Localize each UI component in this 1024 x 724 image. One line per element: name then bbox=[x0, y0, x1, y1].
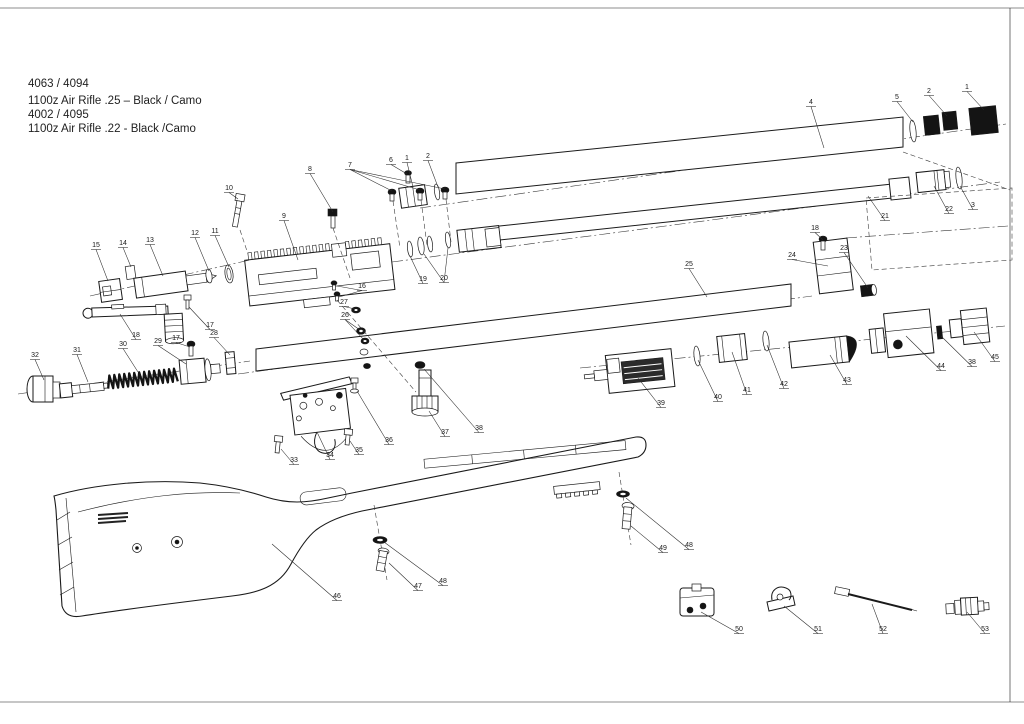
shroud-barrel-group bbox=[392, 106, 1012, 270]
part-label: 40 bbox=[714, 394, 722, 401]
leader-line bbox=[428, 161, 438, 188]
accessories-group bbox=[680, 584, 989, 616]
barrel-breech-cylinder bbox=[457, 226, 501, 253]
leader-line bbox=[123, 248, 131, 268]
part-label: 21 bbox=[881, 213, 889, 220]
part-label: 19 bbox=[419, 276, 427, 283]
part-label: 50 bbox=[735, 626, 743, 633]
bolt-ring-11 bbox=[224, 265, 234, 284]
trigger-screw-33 bbox=[273, 436, 283, 454]
receiver-port bbox=[351, 251, 381, 270]
receiver-screw-8 bbox=[328, 209, 337, 228]
part-label: 41 bbox=[743, 387, 751, 394]
leader-line bbox=[195, 238, 209, 272]
stock-screw-47 bbox=[375, 547, 390, 572]
trigger-blade bbox=[313, 430, 336, 454]
leader-line bbox=[967, 92, 984, 111]
part-label: 31 bbox=[73, 347, 81, 354]
hammer-screw-17 bbox=[187, 341, 195, 356]
model-numbers-2: 4002 / 4095 bbox=[28, 109, 89, 121]
valve-body-tube-43 bbox=[789, 335, 858, 368]
leader-line bbox=[391, 165, 407, 175]
part-label: 36 bbox=[385, 437, 393, 444]
sight-51 bbox=[767, 587, 795, 611]
leader-line bbox=[272, 544, 337, 601]
bolt-spacer bbox=[125, 265, 136, 279]
fill-port-pin-38 bbox=[936, 326, 942, 339]
part-label: 23 bbox=[840, 245, 848, 252]
part-label: 33 bbox=[290, 457, 298, 464]
leader-line bbox=[701, 612, 739, 634]
part-label: 34 bbox=[326, 452, 334, 459]
part-label: 8 bbox=[308, 166, 312, 173]
barrel-tube bbox=[462, 184, 892, 244]
breech-end-piece bbox=[916, 169, 951, 192]
phantom-centerline bbox=[846, 226, 1008, 238]
leader-line bbox=[626, 498, 689, 550]
muzzle-brake-50 bbox=[680, 584, 714, 616]
bolt-end-block bbox=[99, 279, 123, 303]
fill-fitting-45 bbox=[948, 308, 989, 346]
part-label: 44 bbox=[937, 363, 945, 370]
leader-line bbox=[214, 338, 230, 356]
valve-front-body-44 bbox=[868, 309, 934, 359]
buttpad-seam bbox=[66, 498, 76, 612]
part-label: 2 bbox=[927, 88, 931, 95]
barrel-oring bbox=[955, 167, 963, 190]
part-label: 38 bbox=[475, 425, 483, 432]
receiver bbox=[244, 237, 396, 314]
part-label: 20 bbox=[440, 275, 448, 282]
spring-guide-bolt-31 bbox=[59, 379, 108, 398]
leader-line bbox=[150, 245, 163, 277]
part-label: 37 bbox=[441, 429, 449, 436]
part-label: 45 bbox=[991, 354, 999, 361]
bolt-handle-screw-17 bbox=[184, 295, 191, 309]
barrel-collar bbox=[889, 177, 911, 200]
part-label: 1 bbox=[965, 84, 969, 91]
part-label: 53 bbox=[981, 626, 989, 633]
part-label: 27 bbox=[340, 299, 348, 306]
trigger-slot bbox=[299, 487, 346, 506]
part-label: 26 bbox=[341, 312, 349, 319]
part-label: 29 bbox=[154, 338, 162, 345]
valve-spacer-41 bbox=[717, 334, 748, 363]
stock-outline bbox=[54, 437, 646, 617]
shroud-ring bbox=[909, 120, 917, 143]
trigger-group-assembly bbox=[273, 377, 360, 458]
part-label: 49 bbox=[659, 545, 667, 552]
part-label: 10 bbox=[225, 185, 233, 192]
part-label: 16 bbox=[358, 283, 366, 290]
part-label: 38 bbox=[968, 359, 976, 366]
exploded-diagram-canvas: 4063 / 4094 1100z Air Rifle .25 – Black … bbox=[0, 0, 1024, 724]
striker-pin-28 bbox=[225, 352, 236, 375]
valve-oring-42 bbox=[762, 331, 770, 352]
part-label: 17 bbox=[206, 322, 214, 329]
barrel-oring-cluster bbox=[407, 232, 452, 257]
part-label: 7 bbox=[348, 162, 352, 169]
part-label: 15 bbox=[92, 242, 100, 249]
muzzle-cap bbox=[969, 106, 999, 136]
part-label: 52 bbox=[879, 626, 887, 633]
part-label: 5 bbox=[895, 94, 899, 101]
part-label: 43 bbox=[843, 377, 851, 384]
part-label: 48 bbox=[439, 578, 447, 585]
barrel-shroud-tube bbox=[456, 117, 903, 194]
leader-line bbox=[345, 320, 360, 331]
leader-line bbox=[350, 170, 392, 192]
title-block: 4063 / 4094 1100z Air Rifle .25 – Black … bbox=[28, 78, 202, 135]
stock-group bbox=[54, 437, 646, 617]
part-label: 25 bbox=[685, 261, 693, 268]
degassing-tool-52 bbox=[835, 587, 917, 611]
part-label: 22 bbox=[945, 206, 953, 213]
accessory-rail bbox=[554, 482, 601, 499]
leader-line bbox=[96, 250, 108, 282]
leader-line bbox=[350, 170, 445, 190]
parts-diagram-page: 4063 / 4094 1100z Air Rifle .25 – Black … bbox=[0, 0, 1024, 724]
part-label: 32 bbox=[31, 352, 39, 359]
part-label: 47 bbox=[414, 583, 422, 590]
fill-adapter-53 bbox=[945, 597, 989, 616]
part-label: 17 bbox=[172, 335, 180, 342]
end-cap-32 bbox=[27, 376, 60, 402]
part-label: 51 bbox=[814, 626, 822, 633]
trigger-housing-34 bbox=[280, 377, 360, 458]
leader-line bbox=[929, 96, 947, 117]
stock-checkering-patch bbox=[98, 513, 128, 523]
part-label: 11 bbox=[211, 228, 218, 235]
drawing-frame bbox=[0, 8, 1024, 702]
bolt-handle bbox=[83, 301, 184, 348]
rail-notch bbox=[331, 243, 346, 258]
bolt-group bbox=[83, 260, 250, 348]
buttpad-hatching bbox=[57, 512, 74, 595]
phantom-tube-outline bbox=[866, 188, 1012, 270]
part-label: 13 bbox=[146, 237, 154, 244]
leader-line bbox=[123, 349, 138, 373]
part-label: 12 bbox=[191, 230, 199, 237]
bolt-body bbox=[134, 267, 218, 298]
part-label: 18 bbox=[811, 225, 819, 232]
hammer-29 bbox=[179, 357, 221, 384]
part-label: 24 bbox=[788, 252, 796, 259]
leader-line bbox=[215, 236, 229, 268]
part-label: 30 bbox=[119, 341, 127, 348]
part-label: 39 bbox=[657, 400, 665, 407]
model-numbers-1: 4063 / 4094 bbox=[28, 78, 89, 90]
part-label: 4 bbox=[809, 99, 813, 106]
mainspring-group bbox=[18, 341, 250, 402]
part-label: 3 bbox=[971, 202, 975, 209]
hammer-spring-30 bbox=[107, 368, 178, 388]
trigger-pin-36 bbox=[351, 378, 359, 393]
part-label: 18 bbox=[132, 332, 140, 339]
part-label: 46 bbox=[333, 593, 341, 600]
part-label: 6 bbox=[389, 157, 393, 164]
product-name-1: 1100z Air Rifle .25 – Black / Camo bbox=[28, 95, 202, 107]
leader-line bbox=[384, 542, 443, 586]
knob-oring-38 bbox=[415, 362, 425, 369]
leader-line bbox=[77, 355, 88, 383]
stock-screw-49 bbox=[620, 502, 634, 529]
part-label: 2 bbox=[426, 153, 430, 160]
nut-23 bbox=[860, 284, 877, 297]
part-label: 1 bbox=[405, 155, 409, 162]
adjuster-knob-37 bbox=[412, 370, 438, 416]
part-label: 28 bbox=[210, 330, 218, 337]
product-name-2: 1100z Air Rifle .22 - Black /Camo bbox=[28, 123, 196, 135]
part-label: 48 bbox=[685, 542, 693, 549]
leader-line bbox=[689, 269, 707, 298]
part-label: 9 bbox=[282, 213, 286, 220]
leader-line bbox=[158, 346, 186, 365]
part-label: 42 bbox=[780, 381, 788, 388]
cheekpiece-line bbox=[78, 493, 240, 512]
valve-assembly-39 bbox=[582, 349, 674, 396]
part-label: 14 bbox=[119, 240, 127, 247]
leader-line bbox=[784, 606, 818, 634]
leader-line bbox=[310, 174, 333, 213]
part-label: 35 bbox=[355, 447, 363, 454]
